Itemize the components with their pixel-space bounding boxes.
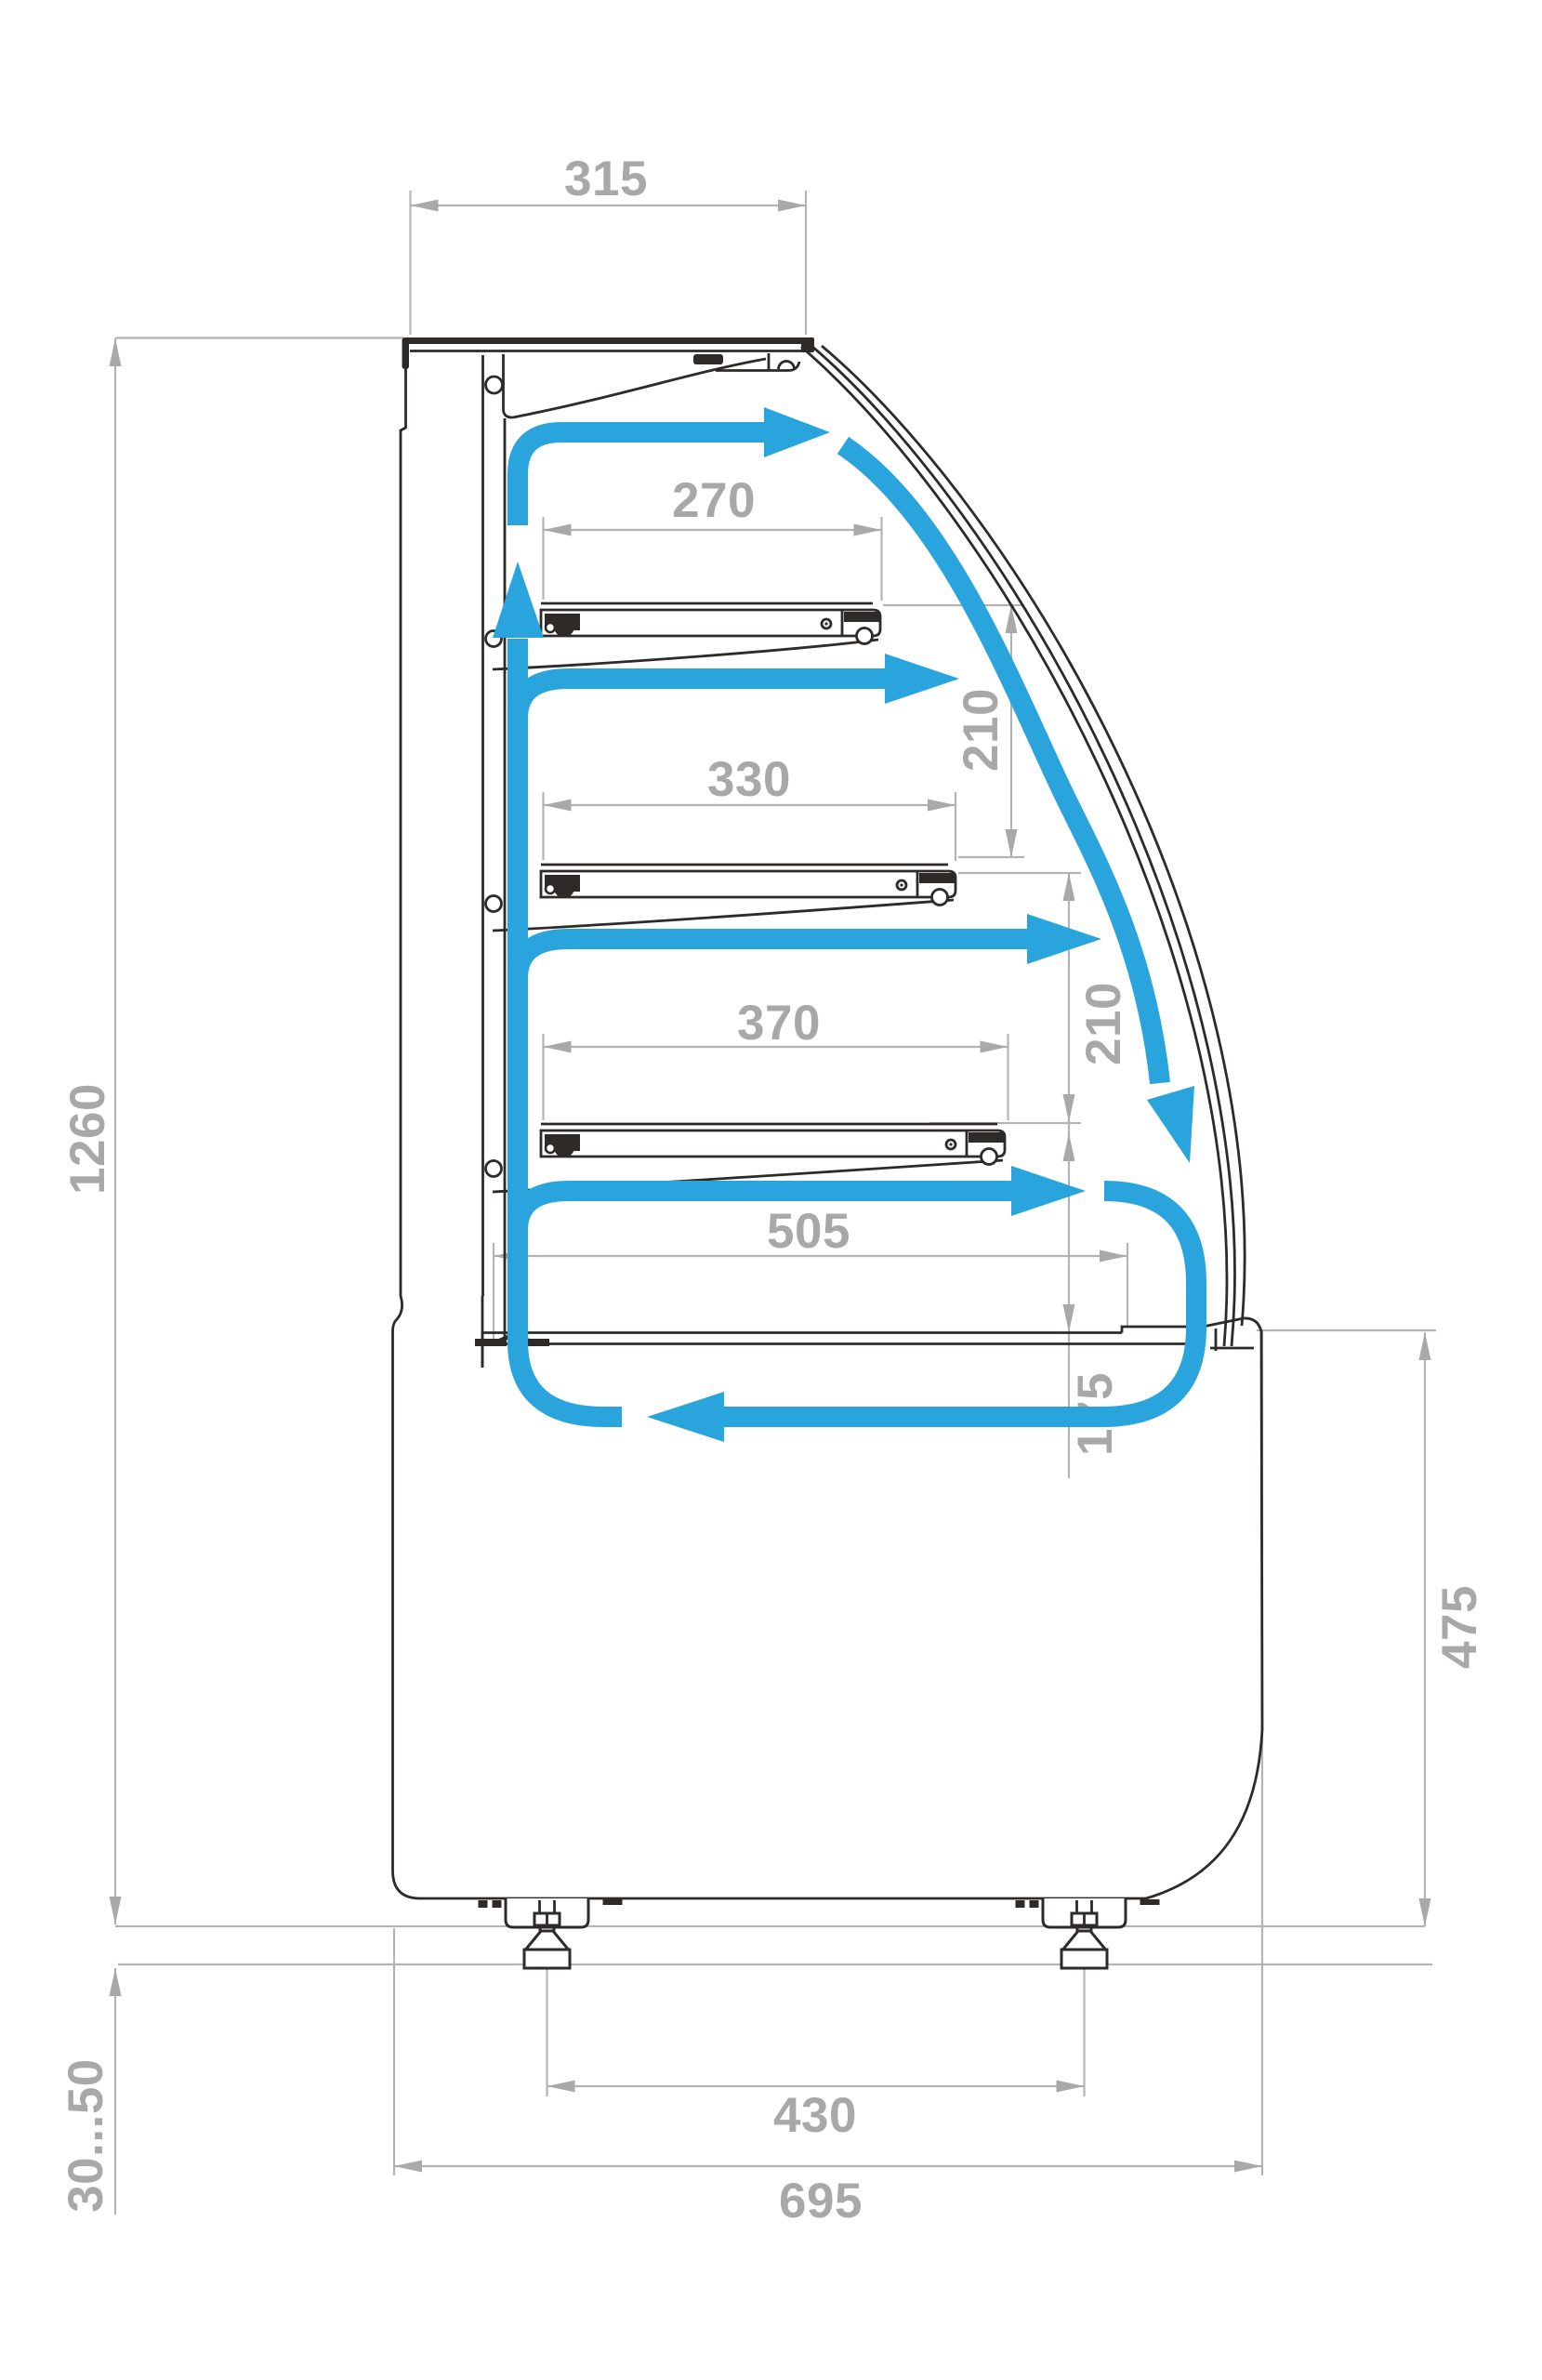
svg-text:315: 315 [564,152,648,206]
svg-text:210: 210 [954,688,1008,772]
svg-text:210: 210 [1076,982,1131,1065]
svg-text:505: 505 [767,1204,850,1259]
svg-text:30...50: 30...50 [59,2058,113,2213]
svg-text:270: 270 [672,473,756,528]
svg-text:370: 370 [737,996,821,1051]
svg-text:430: 430 [773,2088,857,2143]
svg-text:330: 330 [707,752,791,807]
svg-text:475: 475 [1432,1585,1487,1669]
svg-text:695: 695 [779,2174,863,2228]
svg-text:1260: 1260 [60,1083,115,1195]
